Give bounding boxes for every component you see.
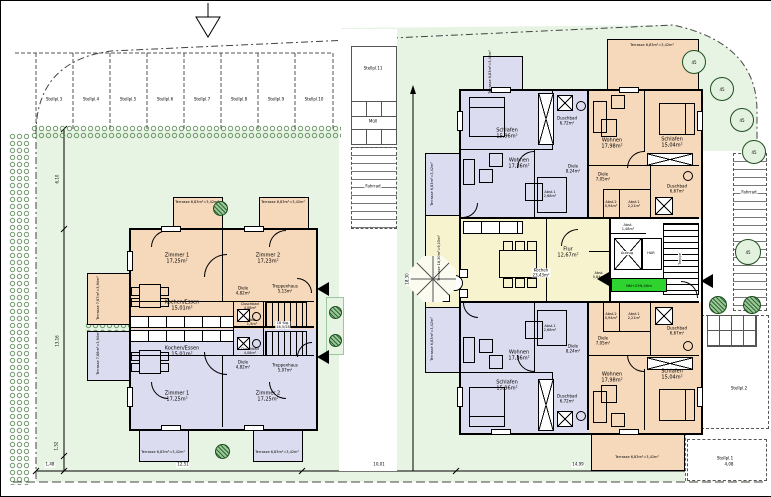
party-wall bbox=[587, 90, 589, 218]
tree-icon: 45 bbox=[742, 140, 766, 164]
dimension-label: 4,08 bbox=[724, 463, 735, 468]
parking-stall-label: Stellpl.2 bbox=[731, 387, 747, 392]
bike-parking-label: Fahrrad bbox=[364, 185, 381, 190]
room-label: Abst. 5,84m² bbox=[593, 271, 606, 279]
wall bbox=[459, 372, 553, 373]
wall bbox=[459, 217, 699, 219]
wall bbox=[619, 303, 620, 332]
room-label: Abst.2 0,94m² bbox=[605, 312, 618, 320]
elevation-marker: NN+259,40m bbox=[611, 278, 667, 292]
window bbox=[697, 387, 703, 407]
room-label: Duschbad 6,72m² bbox=[557, 116, 577, 125]
wall bbox=[644, 369, 645, 430]
window bbox=[619, 429, 639, 435]
tree-label: 45 bbox=[751, 150, 756, 155]
room-label: Wohnen 17,98m² bbox=[601, 138, 622, 150]
entrance-arrow-icon bbox=[317, 350, 329, 364]
room-label: Wohnen 17,36m² bbox=[508, 158, 529, 170]
dimension-label: 13,16 bbox=[56, 335, 61, 346]
kitchen-counter bbox=[130, 330, 234, 342]
toilet-icon bbox=[576, 101, 586, 111]
grid-line bbox=[381, 102, 382, 116]
hedge-west bbox=[9, 133, 29, 485]
room-label: Duschbad 6,67m² bbox=[667, 184, 687, 193]
shrub-icon bbox=[743, 296, 761, 314]
sink-icon bbox=[683, 341, 693, 351]
furniture-sofa bbox=[463, 159, 475, 185]
terrace bbox=[591, 433, 685, 471]
terrace-label: Terrasse 18,30m²=9,15m² bbox=[437, 235, 441, 281]
furniture-chair bbox=[160, 287, 169, 296]
room-label: Wohnen 17,36m² bbox=[508, 350, 529, 362]
dimension-label: 12,51 bbox=[176, 463, 189, 468]
furniture-chair bbox=[515, 278, 525, 288]
room-label: Schlafen 15,04m² bbox=[661, 137, 683, 149]
kitchen-counter bbox=[463, 221, 523, 234]
furniture-table bbox=[139, 350, 161, 374]
wall bbox=[650, 303, 651, 356]
parking-stall-label: Stellpl.3 bbox=[46, 98, 62, 103]
wardrobe-icon bbox=[538, 379, 554, 431]
terrace bbox=[87, 331, 131, 381]
tree-label: 45 bbox=[691, 60, 696, 65]
stair-note: 18 Stg. 18,5/28 bbox=[275, 321, 290, 329]
terrace-label: Terrasse 7,87m²=3,94m² bbox=[96, 276, 100, 320]
wardrobe-icon bbox=[538, 93, 554, 145]
terrace-label: Terrasse 6,83m²=3,42m² bbox=[141, 450, 185, 454]
room-label: Abst. 1,5m² bbox=[247, 318, 257, 326]
furniture-chair bbox=[527, 241, 537, 251]
furniture-table bbox=[139, 284, 161, 308]
room-label: Schlafen 15,96m² bbox=[496, 128, 518, 140]
waste-label: Müll bbox=[368, 120, 378, 125]
room-label: Flur 12,67m² bbox=[557, 247, 578, 259]
bed-pillow bbox=[685, 389, 695, 421]
shrub-icon bbox=[329, 306, 342, 319]
wall bbox=[459, 301, 699, 303]
terrace-label: Terrasse 6,83m²=3,42m² bbox=[488, 50, 492, 94]
bed-pillow bbox=[469, 416, 505, 427]
room-label: Abst.1 2,68m² bbox=[544, 190, 557, 198]
hedge-parking bbox=[31, 125, 341, 139]
room-label: Zimmer 2 17,25m² bbox=[256, 391, 280, 403]
furniture-chair bbox=[527, 278, 537, 288]
shrub-icon bbox=[215, 444, 230, 459]
kitchen-counter bbox=[130, 316, 234, 328]
shower-icon bbox=[655, 307, 673, 325]
window bbox=[127, 251, 133, 271]
furniture-table bbox=[601, 119, 617, 137]
furniture-table bbox=[601, 385, 617, 403]
bed-pillow bbox=[685, 103, 695, 135]
parking-stall-label: Stellpl.7 bbox=[194, 98, 210, 103]
room-label: Duschbad 4,08m² bbox=[241, 302, 258, 310]
tree-icon: 45 bbox=[730, 108, 754, 132]
parking-stall-label: Stellpl.5 bbox=[120, 98, 136, 103]
terrace-label: Terrasse 6,83m²=3,42m² bbox=[630, 43, 674, 47]
furniture-table bbox=[525, 183, 543, 201]
room-label: Abst.2 0,94m² bbox=[605, 200, 618, 208]
shower-icon bbox=[557, 95, 573, 111]
dimension-label: 6,10 bbox=[56, 175, 61, 184]
wall bbox=[619, 189, 620, 218]
terrace-label: Terrasse 6,83m²=3,42m² bbox=[255, 450, 299, 454]
entrance-arrow-icon bbox=[317, 282, 329, 296]
furniture-chair bbox=[611, 95, 625, 109]
furniture-chair bbox=[131, 352, 140, 361]
window bbox=[697, 111, 703, 131]
terrace bbox=[253, 429, 303, 462]
room-label: Diele 7,05m² bbox=[596, 336, 610, 345]
room-label: Zimmer 1 17,25m² bbox=[165, 253, 189, 265]
dimension-label: 1,52 bbox=[55, 442, 60, 451]
wardrobe-icon bbox=[647, 153, 693, 166]
entrance-arrow-icon bbox=[701, 274, 713, 288]
bed-pillow bbox=[469, 97, 505, 108]
tree-icon: 45 bbox=[682, 50, 706, 74]
site-plan-sheet: Stellpl.3 Stellpl.4 Stellpl.5 Stellpl.6 … bbox=[0, 0, 771, 497]
entrance-arrow-icon bbox=[196, 17, 220, 37]
terrace-label: Terrasse 6,83m²=3,42m² bbox=[430, 317, 434, 361]
furniture-chair bbox=[131, 287, 140, 296]
room-label: Diele 8,24m² bbox=[566, 344, 580, 353]
room-label: Abst.1 2,21m² bbox=[628, 312, 641, 320]
dimension-label: 18,30 bbox=[406, 272, 411, 285]
room-label: Schlafen 15,96m² bbox=[496, 380, 518, 392]
shrub-icon bbox=[329, 334, 342, 347]
shrub-icon bbox=[709, 296, 727, 314]
terrace-label: Terrasse 6,83m²=3,42m² bbox=[430, 162, 434, 206]
party-wall bbox=[587, 301, 589, 430]
dimension-label: 10,01 bbox=[372, 463, 385, 468]
dimension-label: 1,48 bbox=[45, 463, 56, 468]
shower-icon bbox=[557, 411, 573, 427]
bike-parking-label: Fahrrad bbox=[740, 191, 757, 196]
wall bbox=[603, 189, 650, 190]
wall bbox=[650, 165, 651, 218]
grid-line bbox=[352, 129, 396, 130]
furniture-chair bbox=[489, 153, 503, 167]
tree-label: 45 bbox=[739, 118, 744, 123]
room-label: Kochen 23,43m² bbox=[532, 268, 551, 277]
wall bbox=[459, 149, 553, 150]
terrace bbox=[139, 429, 189, 462]
wall bbox=[603, 331, 650, 332]
furniture-chair bbox=[459, 269, 468, 278]
room-label: Diele 7,05m² bbox=[596, 172, 610, 181]
furniture-chair bbox=[503, 241, 513, 251]
room-label: Diele 4,82m² bbox=[236, 286, 250, 295]
furniture-chair bbox=[515, 241, 525, 251]
furniture-chair bbox=[131, 298, 140, 307]
room-label: Zimmer 2 17,23m² bbox=[256, 253, 280, 265]
parking-stall-2 bbox=[701, 315, 769, 429]
room-label: HAR bbox=[646, 251, 655, 255]
furniture-chair bbox=[503, 278, 513, 288]
furniture-table bbox=[479, 339, 493, 353]
shower-icon bbox=[655, 197, 673, 215]
window bbox=[161, 425, 181, 431]
room-label: Abst.1 2,68m² bbox=[544, 324, 557, 332]
window bbox=[244, 226, 264, 232]
room-label: Kochen/Essen 15,01m² bbox=[165, 300, 200, 312]
grid-line bbox=[366, 102, 367, 116]
furniture-chair bbox=[131, 363, 140, 372]
parking-stall-label: Stellpl.9 bbox=[268, 98, 284, 103]
room-label: Duschbad 4,08m² bbox=[241, 347, 258, 355]
wall bbox=[263, 328, 264, 356]
parking-stall-label: Stellpl.8 bbox=[231, 98, 247, 103]
wall bbox=[589, 251, 610, 252]
furniture-sofa bbox=[463, 337, 475, 363]
wall bbox=[589, 355, 699, 356]
window bbox=[491, 429, 511, 435]
furniture-chair bbox=[611, 413, 625, 427]
window bbox=[161, 226, 181, 232]
grid-line bbox=[366, 130, 367, 144]
window bbox=[457, 387, 463, 407]
terrace-label: Terrasse 6,83m²=3,42m² bbox=[175, 200, 219, 204]
parking-stall-11 bbox=[351, 46, 397, 103]
furniture-table bbox=[479, 169, 493, 183]
terrace-label: Terrasse 6,83m²=3,42m² bbox=[261, 200, 305, 204]
furniture-chair bbox=[459, 289, 468, 298]
window bbox=[457, 111, 463, 131]
room-label: Kochen/Essen 15,01m² bbox=[165, 346, 200, 358]
wall bbox=[546, 219, 547, 302]
terrace bbox=[87, 273, 131, 325]
room-label: Abst. 1,48m² bbox=[622, 223, 635, 231]
tree-label: 45 bbox=[745, 250, 750, 255]
wall bbox=[644, 90, 645, 152]
room-label: Aufzug bbox=[620, 251, 634, 255]
room-label: Schlafen 15,04m² bbox=[661, 369, 683, 381]
window bbox=[491, 87, 511, 93]
wall bbox=[263, 301, 264, 327]
parking-stall-lines bbox=[15, 53, 333, 130]
furniture-table bbox=[525, 321, 543, 339]
parking-stall-label: Stellpl.10 bbox=[305, 98, 324, 103]
sink-icon bbox=[683, 171, 693, 181]
terrace-label: Terrasse 7,88m²=3,94m² bbox=[96, 331, 100, 375]
window bbox=[127, 387, 133, 407]
parking-stall-label: Stellpl.4 bbox=[83, 98, 99, 103]
tree-label: 45 bbox=[719, 87, 724, 92]
window bbox=[619, 87, 639, 93]
grid-line bbox=[352, 116, 396, 117]
bike-parking-east bbox=[733, 153, 767, 311]
room-label: Treppe bbox=[678, 252, 682, 266]
furniture-chair bbox=[160, 363, 169, 372]
tree-icon: 45 bbox=[710, 77, 734, 101]
room-label: Treppenhaus 5,13m² bbox=[272, 284, 298, 293]
room-label: Duschbad 6,67m² bbox=[667, 326, 687, 335]
room-label: Treppenhaus 5,07m² bbox=[272, 363, 298, 372]
wall bbox=[611, 233, 646, 234]
dimension-label: 14,99 bbox=[571, 463, 584, 468]
parking-stall-label: Stellpl.1 bbox=[717, 457, 733, 462]
tree-icon: 45 bbox=[735, 239, 761, 265]
room-label: Diele 4,82m² bbox=[236, 360, 250, 369]
window bbox=[244, 425, 264, 431]
parking-stall-label: Stellpl.11 bbox=[364, 67, 383, 72]
room-label: Duschbad 6,72m² bbox=[557, 394, 577, 403]
toilet-icon bbox=[576, 411, 586, 421]
terrace-label: Terrasse 6,83m²=3,42m² bbox=[615, 455, 659, 459]
room-label: Zimmer 1 17,25m² bbox=[165, 391, 189, 403]
parking-stall-label: Stellpl.6 bbox=[157, 98, 173, 103]
grid-line bbox=[381, 130, 382, 144]
room-label: Abst.1 2,21m² bbox=[628, 200, 641, 208]
room-label: Wohnen 17,98m² bbox=[601, 372, 622, 384]
furniture-chair bbox=[489, 355, 503, 369]
room-label: Diele 8,24m² bbox=[566, 164, 580, 173]
